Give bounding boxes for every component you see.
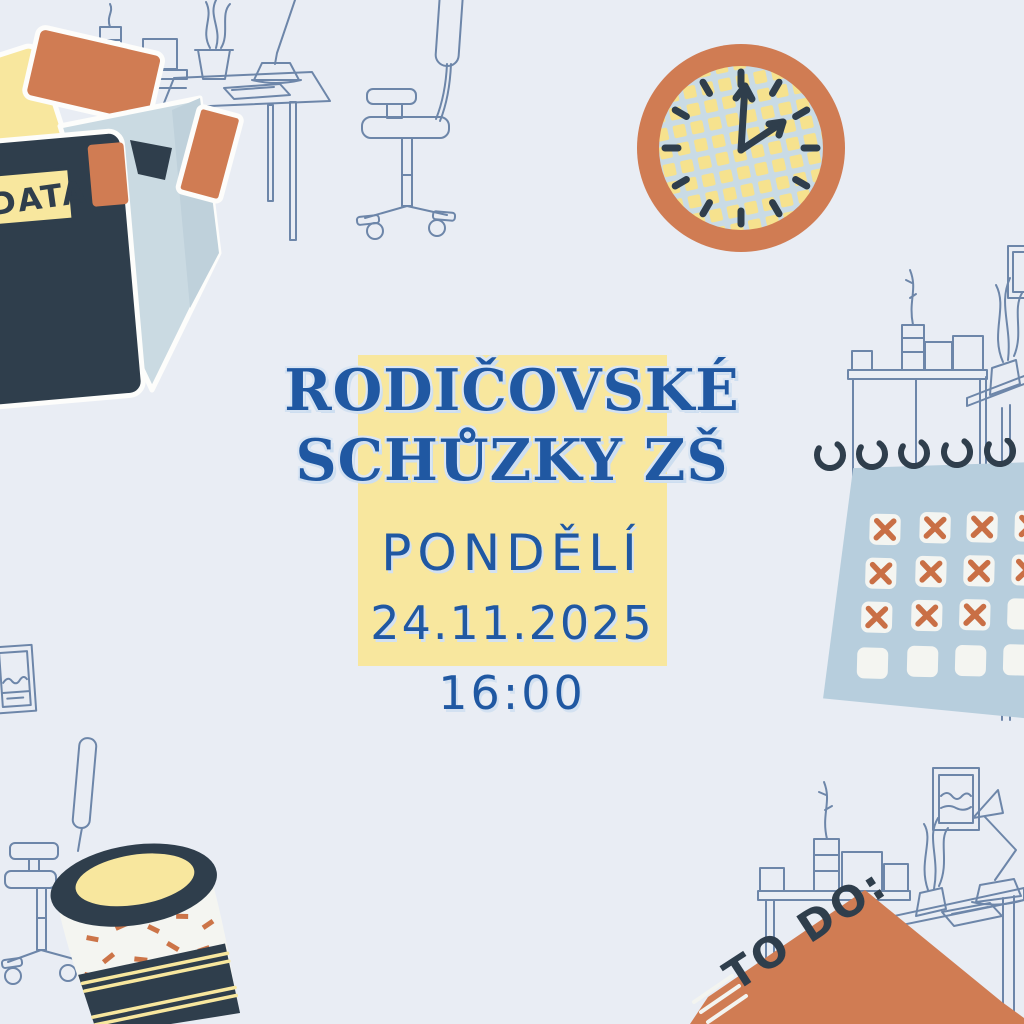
todo-notebook-icon: TO DO: [690, 859, 1024, 1024]
bin-illustration [0, 733, 240, 1024]
waste-bin-icon [45, 832, 240, 1024]
office-chair-icon [357, 0, 464, 239]
folders-illustration: DATA [0, 18, 245, 393]
title-line-2: SCHŮZKY ZŠ [0, 432, 1024, 489]
clock-illustration [633, 40, 851, 258]
event-date: 24.11.2025 [0, 600, 1024, 646]
office-chair-top-illustration [345, 0, 480, 248]
event-poster: DATA [0, 0, 1024, 1024]
clock-icon [637, 44, 845, 252]
todo-illustration: TO DO: [680, 740, 1024, 1024]
title-line-1: RODIČOVSKÉ [0, 362, 1024, 419]
event-time: 16:00 [0, 670, 1024, 716]
event-day: PONDĚLÍ [0, 528, 1024, 578]
folder-stack: DATA [0, 26, 242, 408]
